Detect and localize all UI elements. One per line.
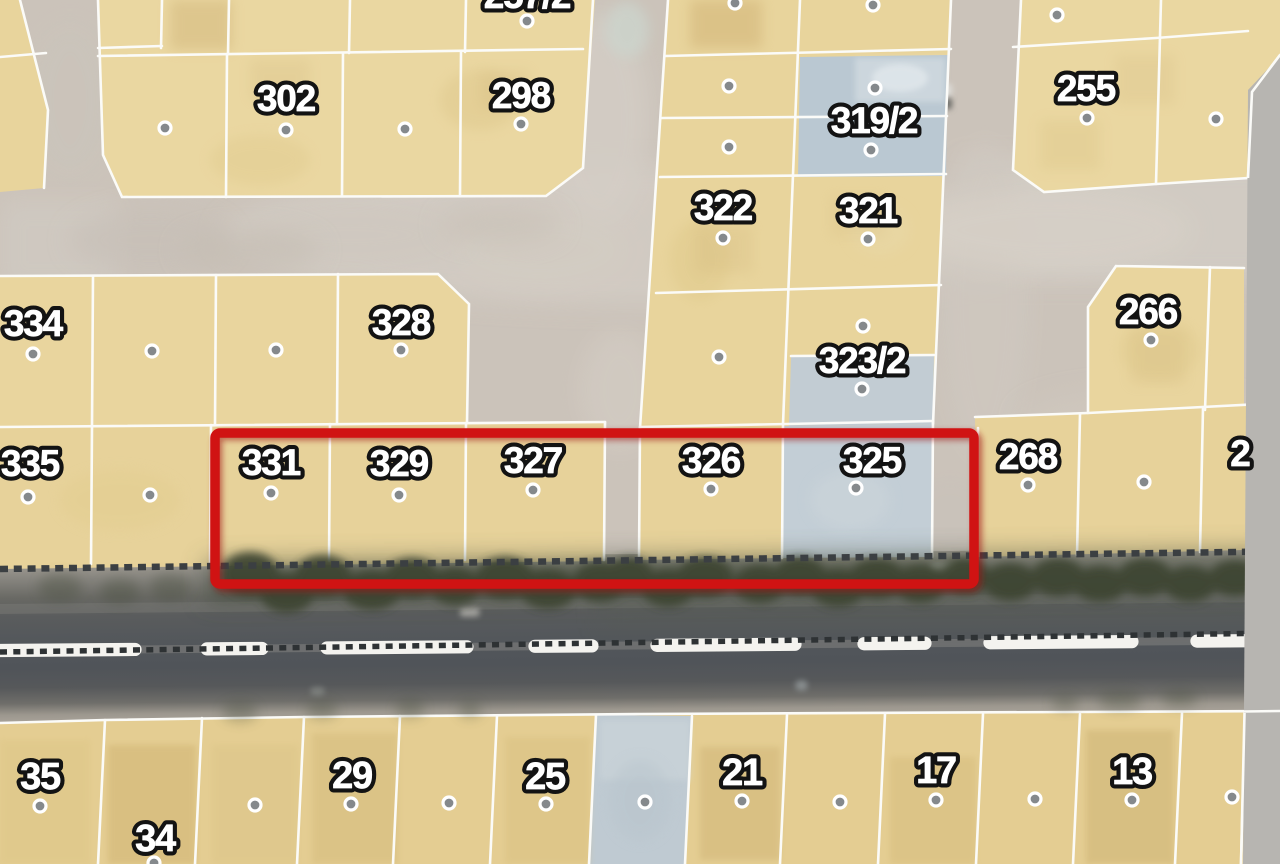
svg-text:266: 266	[1119, 291, 1178, 332]
svg-text:29: 29	[332, 755, 372, 797]
svg-text:328: 328	[372, 302, 431, 343]
svg-text:327: 327	[504, 440, 562, 481]
svg-text:325: 325	[843, 440, 902, 481]
svg-text:25: 25	[525, 756, 566, 798]
svg-text:35: 35	[20, 756, 61, 798]
svg-text:331: 331	[242, 442, 301, 483]
svg-text:255: 255	[1057, 68, 1116, 109]
svg-text:17: 17	[916, 750, 956, 792]
svg-text:329: 329	[370, 443, 429, 484]
svg-text:323/2: 323/2	[819, 340, 906, 381]
svg-text:335: 335	[1, 443, 60, 484]
svg-text:13: 13	[1112, 751, 1152, 793]
svg-text:268: 268	[999, 436, 1058, 477]
svg-text:326: 326	[682, 440, 741, 481]
svg-text:321: 321	[839, 190, 898, 231]
svg-text:298: 298	[492, 75, 551, 116]
svg-text:322: 322	[694, 187, 753, 228]
svg-text:302: 302	[257, 78, 316, 119]
svg-text:21: 21	[722, 752, 763, 794]
svg-text:34: 34	[135, 818, 176, 860]
svg-text:334: 334	[4, 303, 64, 344]
svg-text:257/2: 257/2	[484, 0, 571, 16]
svg-text:319/2: 319/2	[831, 100, 918, 141]
svg-text:2: 2	[1230, 433, 1250, 474]
